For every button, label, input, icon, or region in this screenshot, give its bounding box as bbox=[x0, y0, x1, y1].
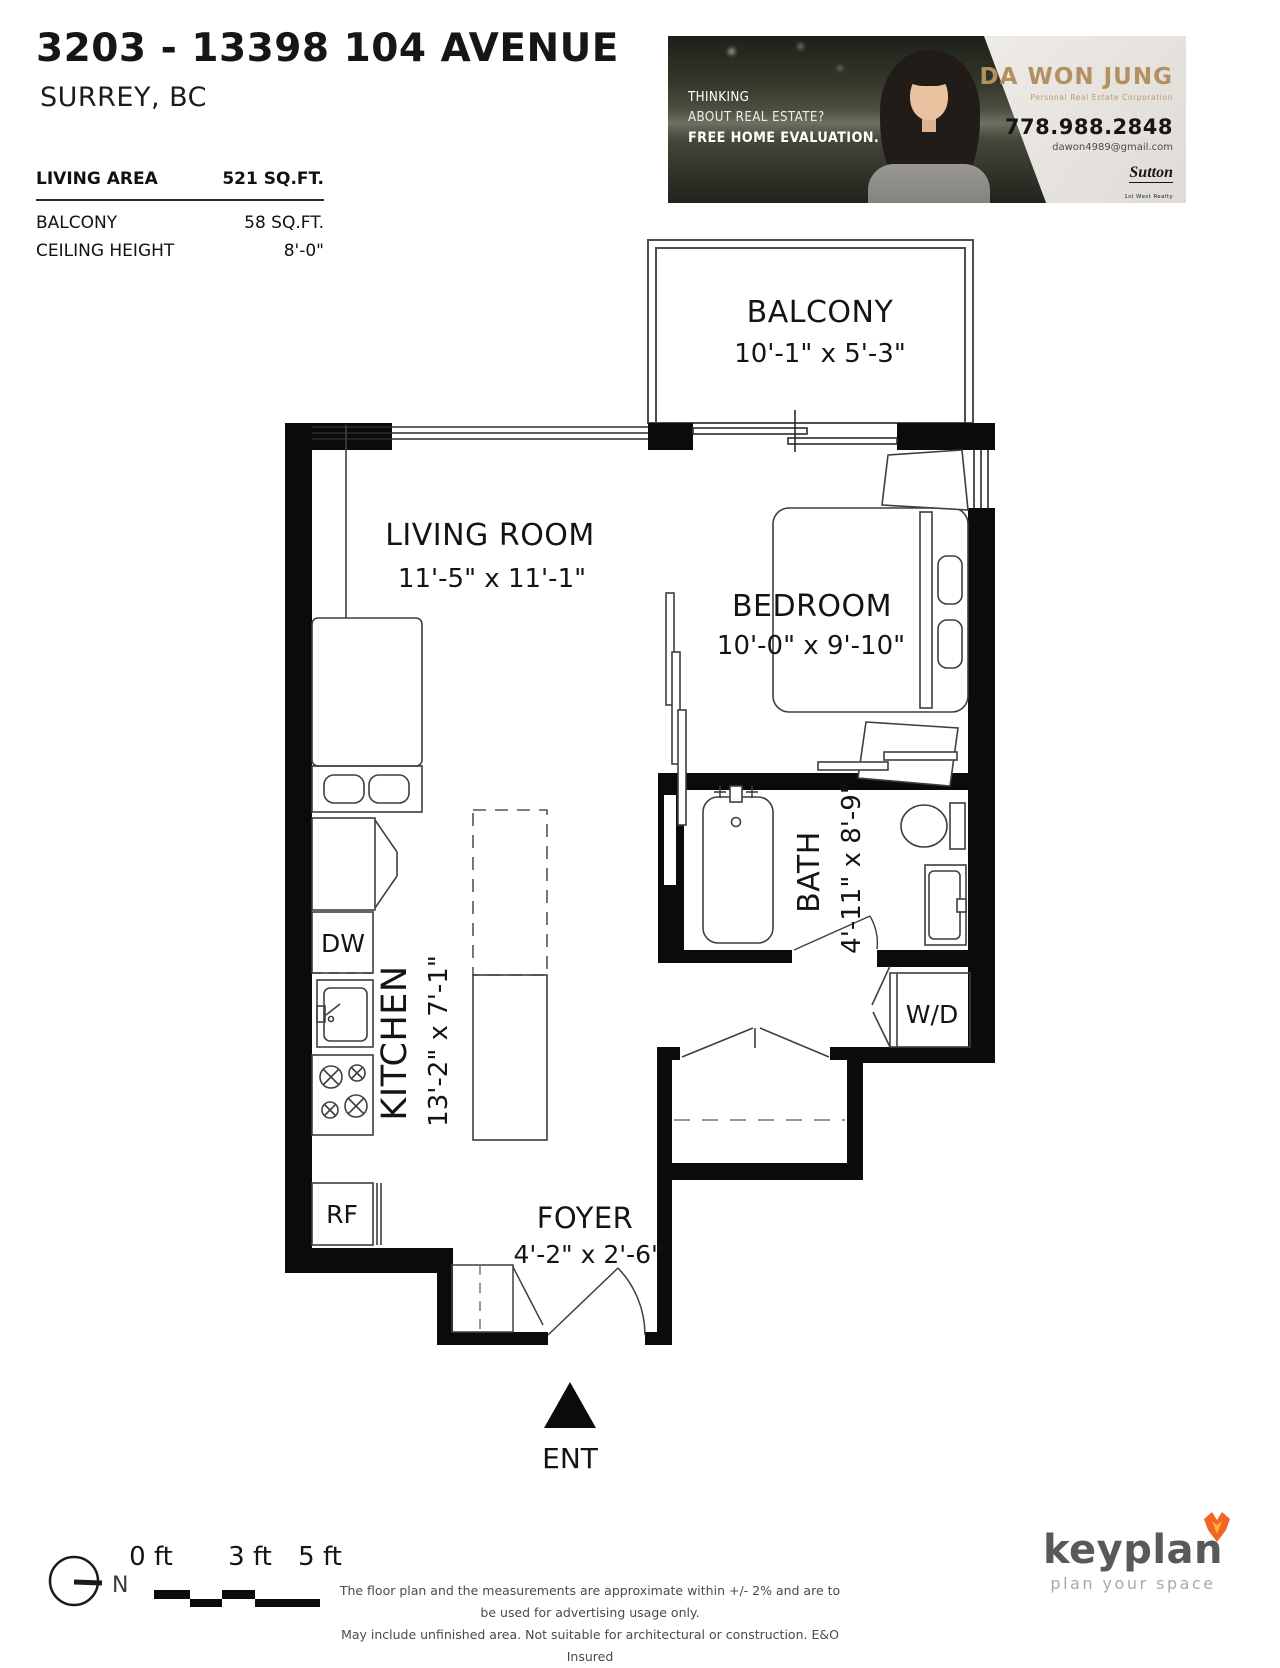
keyplan-logo[interactable]: keyplan plan your space bbox=[1028, 1528, 1238, 1593]
wall-left bbox=[285, 423, 312, 1273]
bathroom-vanity-sink bbox=[925, 865, 966, 945]
balcony-sliding-door bbox=[693, 410, 897, 452]
keyplan-wordmark: keyplan bbox=[1043, 1528, 1223, 1572]
cooktop bbox=[312, 1055, 373, 1135]
wall-closet-jamb-right bbox=[830, 1047, 847, 1060]
pillow bbox=[938, 556, 962, 604]
label-balcony: BALCONY bbox=[747, 295, 894, 330]
wall-bath-bottom bbox=[658, 950, 792, 963]
disclaimer-line-2: May include unfinished area. Not suitabl… bbox=[335, 1624, 845, 1668]
dims-balcony: 10'-1" x 5'-3" bbox=[734, 339, 906, 369]
entry-door bbox=[548, 1268, 645, 1335]
entry-closet bbox=[452, 1265, 543, 1332]
kitchen-counter bbox=[312, 618, 422, 812]
entry-closet-door bbox=[513, 1267, 543, 1325]
hall-closet bbox=[674, 1028, 845, 1120]
dims-foyer: 4'-2" x 2'-6" bbox=[513, 1240, 662, 1269]
disclaimer-line-1: The floor plan and the measurements are … bbox=[335, 1580, 845, 1624]
entry-door-opening bbox=[548, 1332, 645, 1345]
label-washer-dryer: W/D bbox=[906, 1000, 958, 1029]
balcony-outline bbox=[648, 240, 973, 423]
kitchen-island bbox=[473, 810, 547, 1140]
floor-plan-drawing: BALCONY 10'-1" x 5'-3" LIVING ROOM 11'-5… bbox=[0, 0, 1280, 1657]
wall-closet-east bbox=[847, 1060, 863, 1180]
north-compass-icon: N bbox=[50, 1557, 128, 1605]
corner-cabinet bbox=[312, 818, 397, 910]
scale-tick-3: 3 ft bbox=[228, 1542, 272, 1572]
wd-bifold-door bbox=[873, 1012, 890, 1047]
wd-bifold-door bbox=[872, 966, 890, 1005]
label-fridge: RF bbox=[326, 1200, 358, 1229]
label-bedroom: BEDROOM bbox=[732, 589, 892, 624]
scale-tick-0: 0 ft bbox=[129, 1542, 173, 1572]
nightstand-chair-top bbox=[882, 450, 968, 510]
pillow bbox=[938, 620, 962, 668]
bathtub bbox=[703, 786, 773, 943]
dims-bedroom: 10'-0" x 9'-10" bbox=[717, 631, 905, 661]
closet-bifold-door bbox=[760, 1028, 829, 1057]
label-foyer: FOYER bbox=[537, 1201, 634, 1235]
kitchen-sink bbox=[317, 980, 373, 1047]
dims-kitchen: 13'-2" x 7'-1" bbox=[424, 955, 454, 1127]
wall-hall-west bbox=[657, 1060, 672, 1345]
fox-icon bbox=[1203, 1512, 1231, 1542]
keyplan-text: keyplan bbox=[1043, 1527, 1223, 1573]
label-entry: ENT bbox=[542, 1442, 599, 1475]
closet-bifold-door bbox=[682, 1028, 753, 1057]
wall-closet-bottom bbox=[657, 1163, 863, 1180]
wall-kitchen-bottom bbox=[285, 1248, 453, 1273]
label-kitchen: KITCHEN bbox=[375, 965, 415, 1120]
entry-arrow-icon bbox=[544, 1382, 596, 1428]
wall-closet-jamb-left bbox=[657, 1047, 680, 1060]
label-living-room: LIVING ROOM bbox=[385, 518, 595, 553]
disclaimer-text: The floor plan and the measurements are … bbox=[335, 1580, 845, 1668]
scale-bar: 0 ft 3 ft 5 ft bbox=[129, 1542, 342, 1607]
wall-wd-bottom bbox=[847, 1047, 995, 1063]
bedroom-side-window bbox=[968, 450, 995, 508]
dims-living-room: 11'-5" x 11'-1" bbox=[398, 564, 586, 594]
keyplan-tagline: plan your space bbox=[1028, 1574, 1238, 1593]
dims-bath: 4'-11" x 8'-9" bbox=[837, 782, 867, 954]
wall-top-mid bbox=[648, 423, 693, 450]
toilet bbox=[901, 803, 965, 849]
scale-tick-5: 5 ft bbox=[298, 1542, 342, 1572]
pocket-door-cavity bbox=[664, 795, 676, 885]
wall-bath-wd-divider bbox=[877, 950, 995, 967]
north-label: N bbox=[112, 1573, 128, 1598]
label-dishwasher: DW bbox=[321, 929, 365, 958]
label-bath: BATH bbox=[792, 831, 827, 913]
